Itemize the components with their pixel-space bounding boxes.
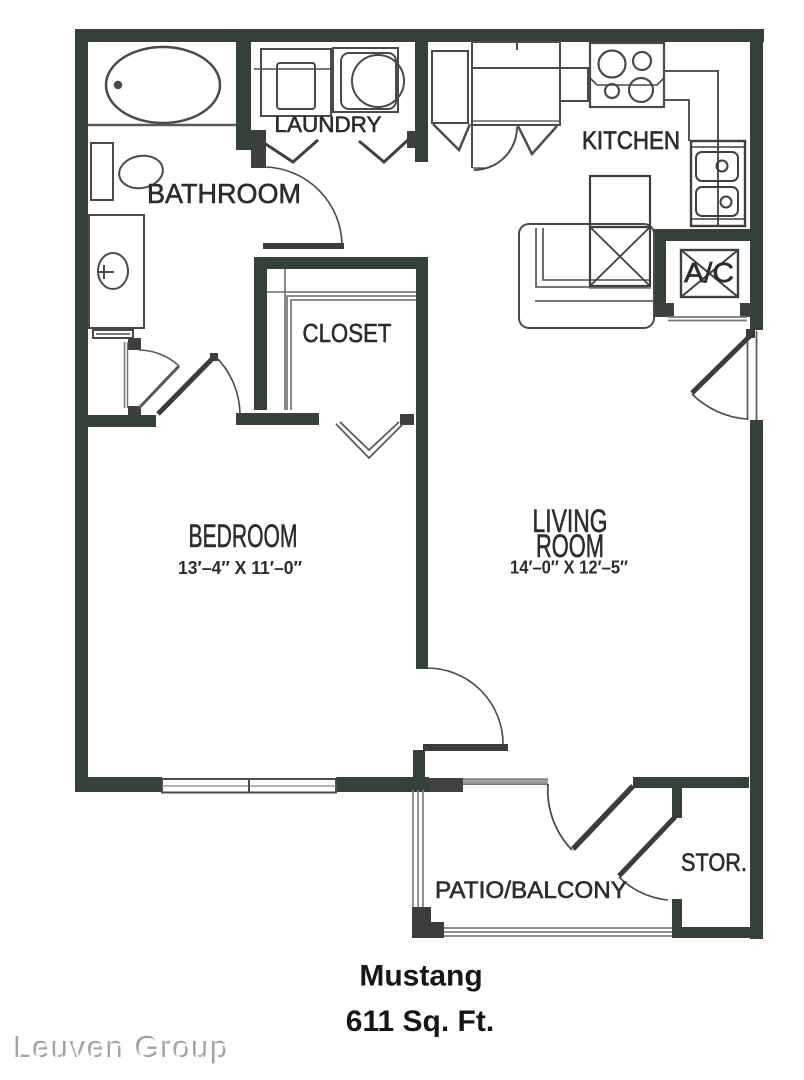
svg-text:A/C: A/C xyxy=(684,257,734,288)
svg-text:PATIO/BALCONY: PATIO/BALCONY xyxy=(435,877,627,904)
svg-text:13′–4″ X 11′–0″: 13′–4″ X 11′–0″ xyxy=(178,558,302,578)
svg-text:KITCHEN: KITCHEN xyxy=(582,127,680,155)
svg-text:611 Sq. Ft.: 611 Sq. Ft. xyxy=(346,1005,494,1038)
svg-text:Mustang: Mustang xyxy=(359,960,482,993)
svg-text:14′–0″ X 12′–5″: 14′–0″ X 12′–5″ xyxy=(510,558,628,578)
svg-text:Leuven Group: Leuven Group xyxy=(16,1032,232,1067)
svg-text:BATHROOM: BATHROOM xyxy=(147,178,301,209)
svg-text:STOR.: STOR. xyxy=(681,849,747,877)
svg-text:LAUNDRY: LAUNDRY xyxy=(275,112,382,137)
svg-text:BEDROOM: BEDROOM xyxy=(189,518,298,554)
svg-text:CLOSET: CLOSET xyxy=(303,318,392,348)
